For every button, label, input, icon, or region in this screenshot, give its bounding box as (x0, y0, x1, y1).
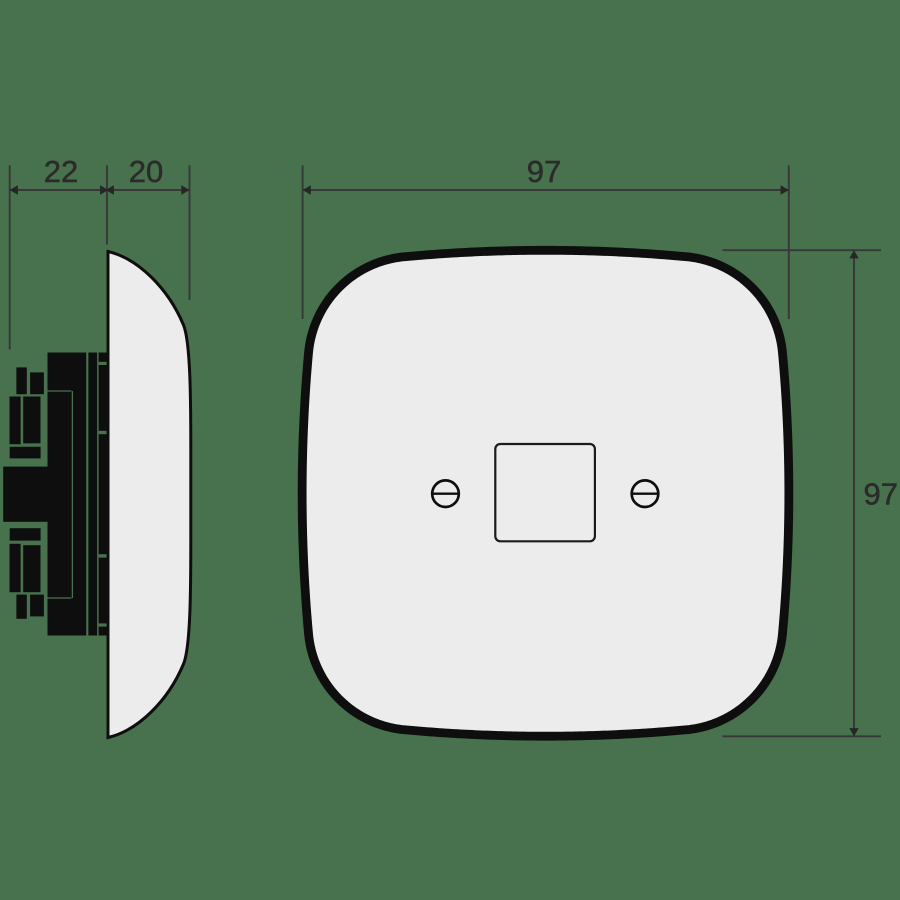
svg-text:97: 97 (864, 477, 898, 512)
svg-text:22: 22 (44, 154, 78, 189)
svg-text:97: 97 (527, 154, 561, 189)
svg-text:20: 20 (129, 154, 163, 189)
